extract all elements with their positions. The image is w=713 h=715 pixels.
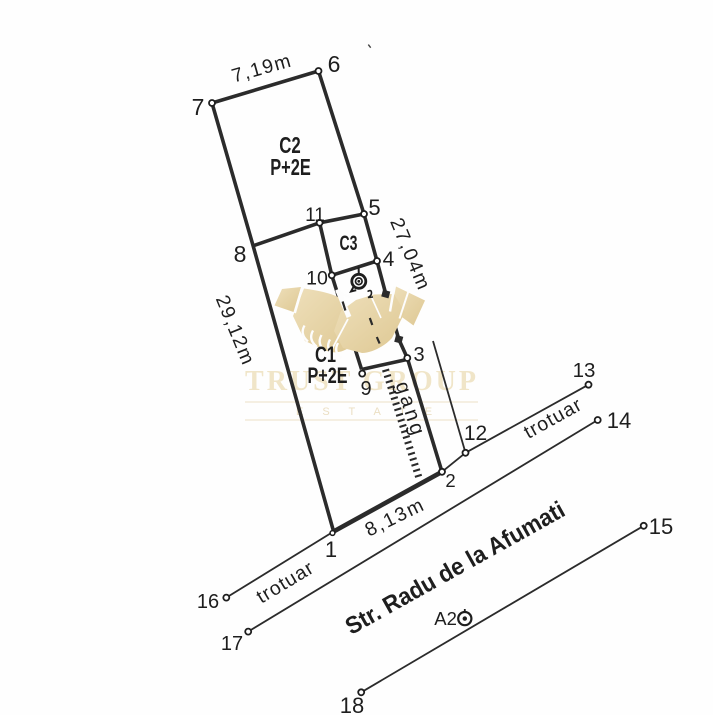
svg-text:8,13m: 8,13m (362, 493, 429, 541)
svg-text:1: 1 (325, 537, 337, 562)
svg-text:P+2E: P+2E (308, 363, 348, 388)
svg-text:29,12m: 29,12m (211, 292, 259, 369)
svg-text:17: 17 (221, 633, 243, 655)
svg-text:10: 10 (306, 268, 328, 290)
svg-text:18: 18 (340, 693, 364, 715)
svg-text:7: 7 (192, 94, 205, 120)
svg-text:8: 8 (234, 241, 247, 267)
svg-text:6: 6 (328, 51, 341, 77)
svg-text:12: 12 (464, 422, 487, 445)
svg-text:16: 16 (197, 591, 219, 613)
svg-text:4: 4 (383, 248, 395, 271)
svg-text:14: 14 (607, 408, 631, 433)
svg-text:15: 15 (649, 514, 673, 539)
svg-text:C3: C3 (340, 232, 358, 255)
svg-text:2: 2 (445, 470, 455, 491)
svg-text:A2: A2 (434, 608, 457, 629)
svg-text:13: 13 (573, 359, 596, 382)
svg-text:trotuar: trotuar (253, 557, 319, 608)
svg-text:trotuar: trotuar (520, 394, 586, 444)
svg-text:5: 5 (368, 195, 380, 220)
svg-text:9: 9 (360, 378, 371, 400)
svg-text:3: 3 (413, 344, 424, 366)
svg-text:P+2E: P+2E (270, 154, 311, 180)
svg-text:11: 11 (305, 205, 325, 226)
